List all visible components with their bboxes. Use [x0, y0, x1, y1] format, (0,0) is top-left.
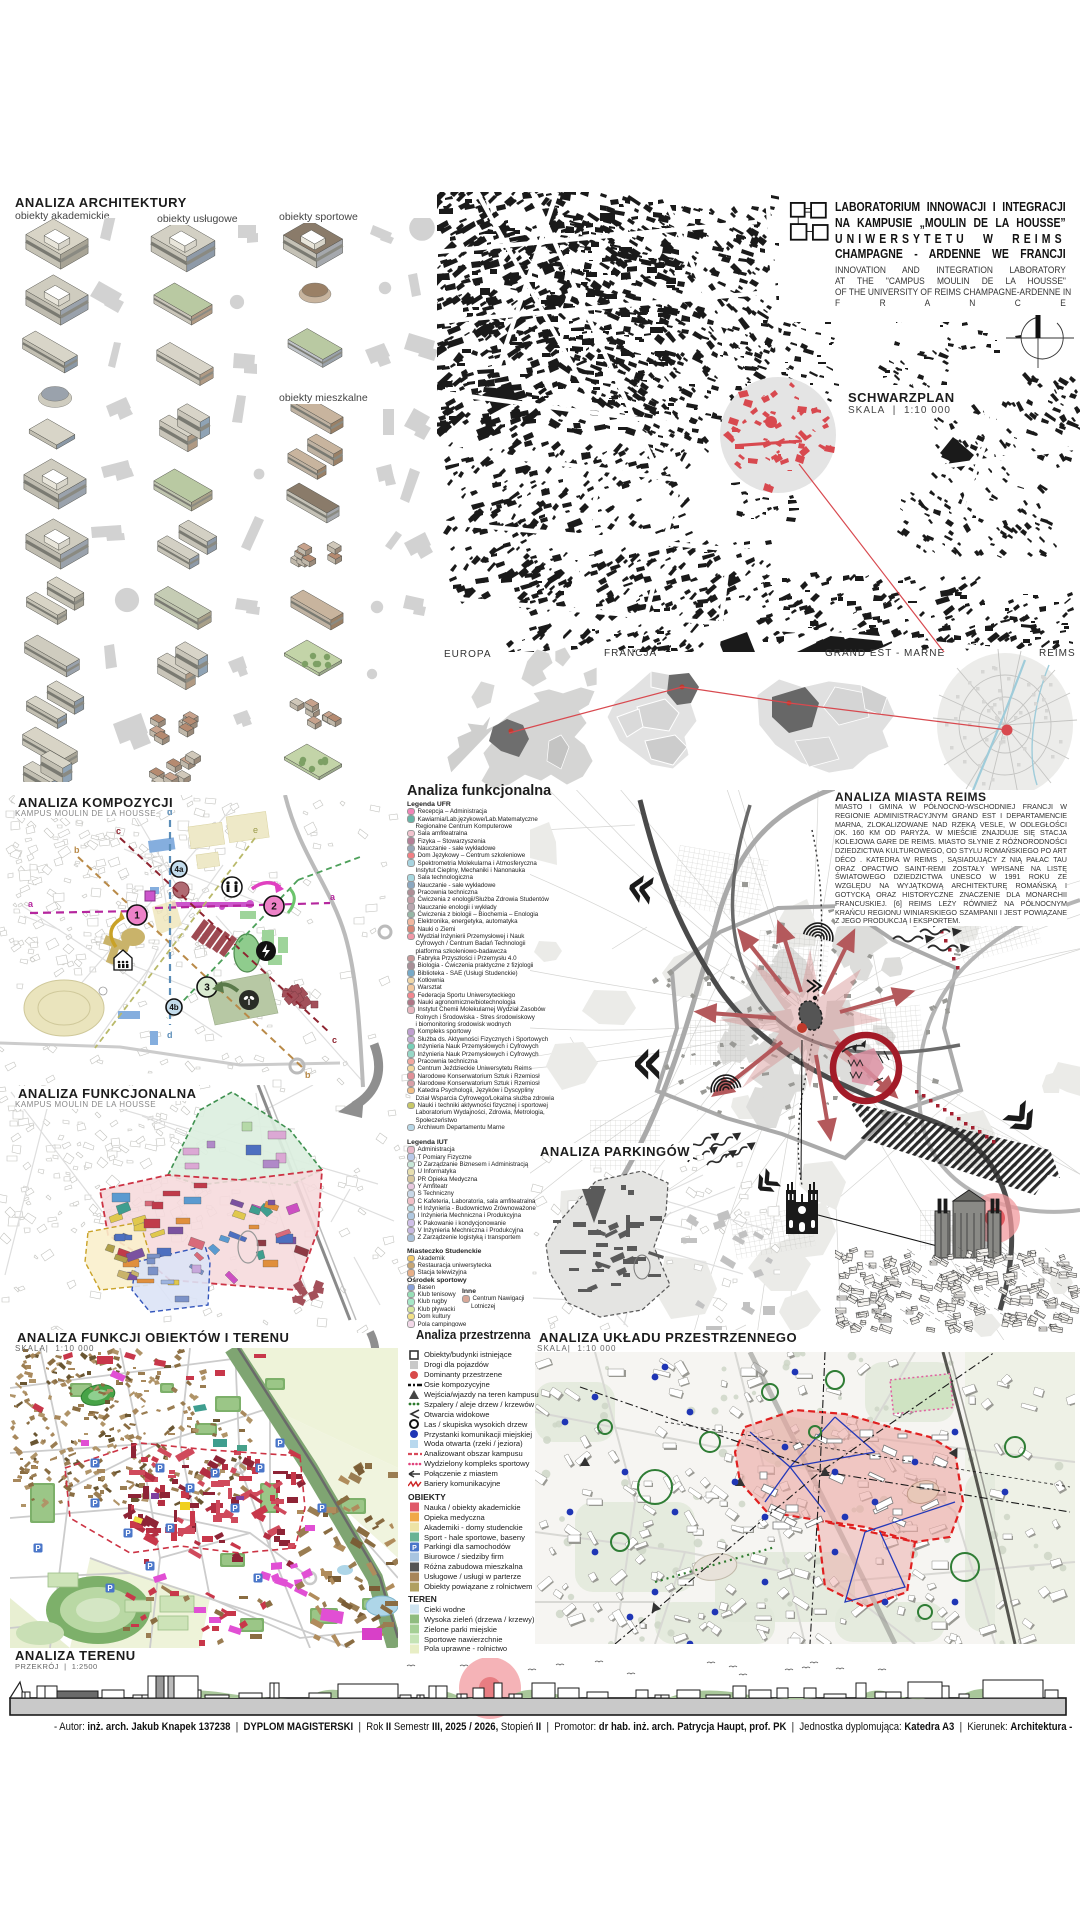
svg-text:P: P	[255, 1574, 261, 1583]
svg-text:b: b	[305, 1070, 311, 1080]
svg-text:a: a	[330, 892, 336, 902]
svg-text:P: P	[212, 1469, 218, 1478]
svg-text:REIMS: REIMS	[1039, 648, 1076, 659]
svg-text:d: d	[167, 1030, 173, 1040]
svg-text:EUROPA: EUROPA	[444, 649, 492, 660]
svg-text:b: b	[74, 845, 80, 855]
svg-text:P: P	[92, 1459, 98, 1468]
svg-text:P: P	[125, 1529, 131, 1538]
svg-text:P: P	[319, 1504, 325, 1513]
svg-text:1: 1	[134, 911, 140, 922]
svg-text:P: P	[277, 1439, 283, 1448]
svg-text:P: P	[107, 1584, 113, 1593]
svg-text:P: P	[187, 1484, 193, 1493]
svg-text:P: P	[147, 1562, 153, 1571]
svg-text:4a: 4a	[175, 865, 184, 874]
svg-text:GRAND EST - MARNE: GRAND EST - MARNE	[825, 648, 945, 659]
svg-text:a: a	[28, 899, 34, 909]
svg-text:e: e	[253, 825, 258, 835]
svg-text:P: P	[232, 1504, 238, 1513]
svg-text:P: P	[157, 1464, 163, 1473]
svg-text:4b: 4b	[169, 1003, 178, 1012]
svg-text:FRANCJA: FRANCJA	[604, 648, 657, 659]
svg-text:3: 3	[204, 983, 210, 994]
svg-text:2: 2	[271, 902, 277, 913]
svg-text:P: P	[35, 1544, 41, 1553]
svg-text:P: P	[257, 1464, 263, 1473]
svg-text:c: c	[116, 826, 121, 836]
svg-text:P: P	[92, 1499, 98, 1508]
svg-text:P: P	[167, 1524, 173, 1533]
